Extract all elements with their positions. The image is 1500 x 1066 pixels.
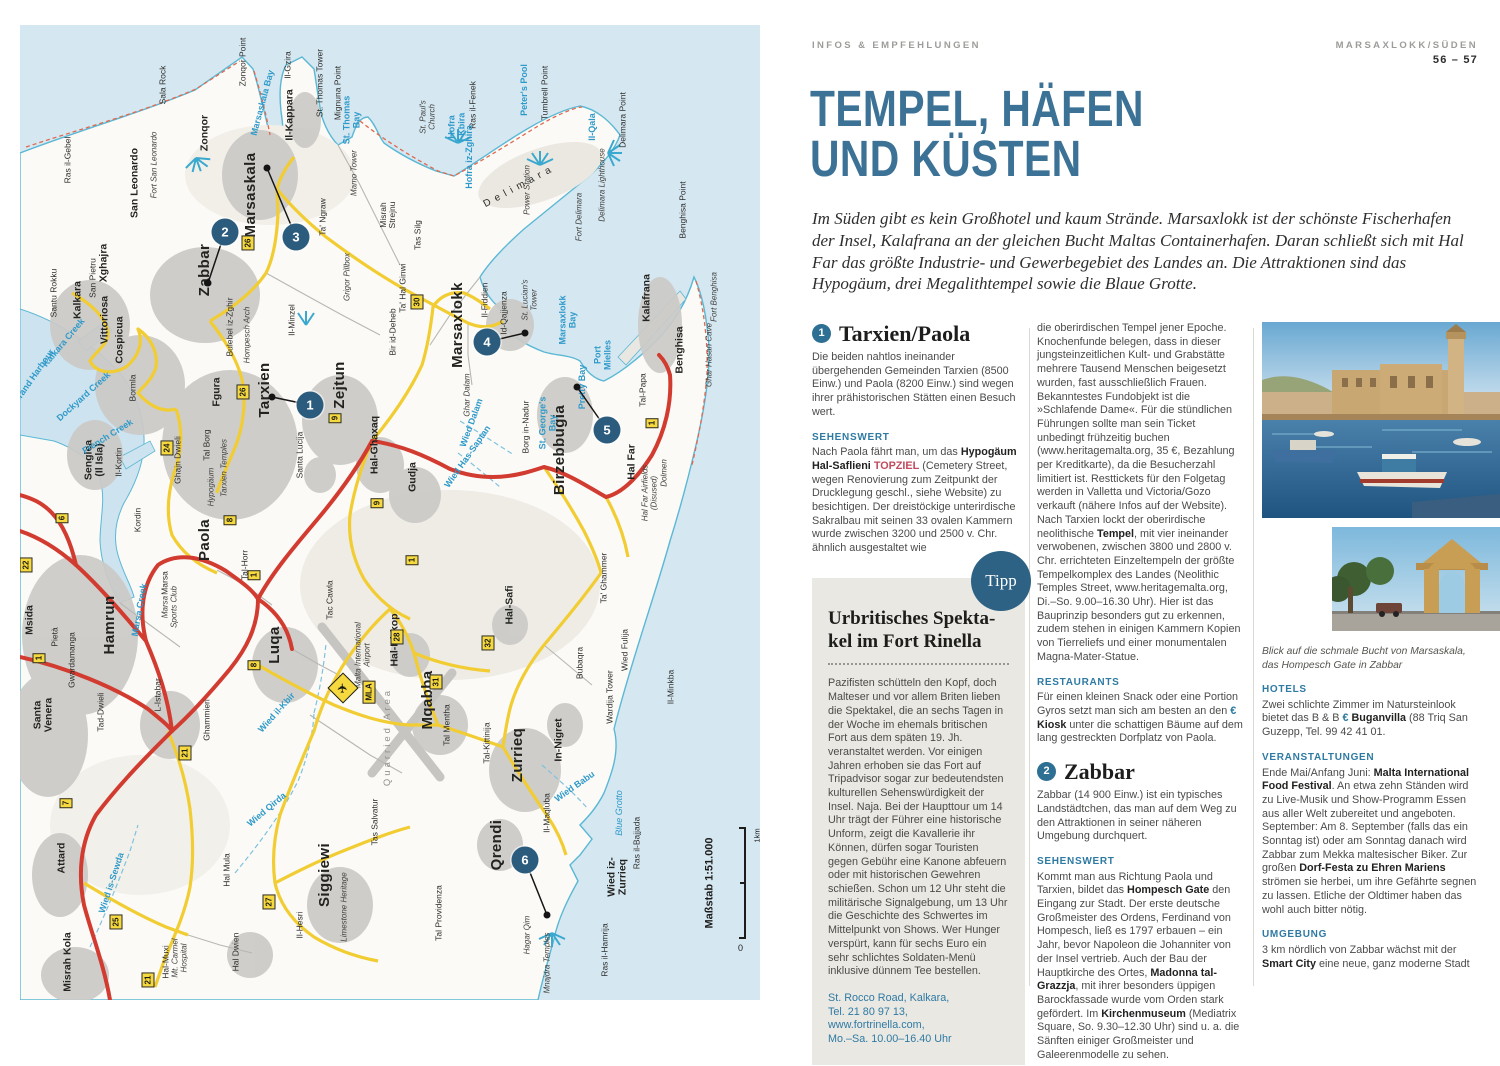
body-paragraph: Die beiden nahtlos ineinander übergehend… xyxy=(812,351,1025,420)
kicker-sehenswert: SEHENSWERT xyxy=(1037,855,1245,869)
photo-marsaskala-harbour xyxy=(1262,322,1500,518)
section-title: Zabbar xyxy=(1064,765,1135,779)
kicker-sehenswert: SEHENSWERT xyxy=(812,431,1025,445)
map-marker-dot xyxy=(205,280,212,287)
running-header-right: MARSAXLOKK/SÜDEN 56 – 57 xyxy=(1336,40,1478,66)
tipp-badge: Tipp xyxy=(971,551,1031,611)
photo-caption: Blick auf die schmale Bucht von Marsaska… xyxy=(1262,645,1478,672)
body-paragraph: die oberirdischen Tempel jener Epoche. K… xyxy=(1037,322,1245,665)
dotted-divider xyxy=(828,663,1009,665)
tipp-body: Pazifisten schütteln den Kopf, doch Malt… xyxy=(828,677,1009,978)
map-marker-4: 4 xyxy=(474,329,501,356)
map-marker-dot xyxy=(522,330,529,337)
map-marker-5: 5 xyxy=(594,417,621,444)
running-header-left: INFOS & EMPFEHLUNGEN xyxy=(812,40,981,51)
section-heading-zabbar: 2 Zabbar xyxy=(1037,762,1245,781)
body-paragraph: Zabbar (14 900 Einw.) ist ein typisches … xyxy=(1037,789,1245,844)
column-3: Blick auf die schmale Bucht von Marsaska… xyxy=(1262,322,1500,975)
tipp-title: Urbritisches Spekta- kel im Fort Rinella xyxy=(828,608,1009,654)
section-title: Tarxien/Paola xyxy=(839,327,970,341)
map-marker-6: 6 xyxy=(512,847,539,874)
map-marker-3: 3 xyxy=(283,224,310,251)
section-heading-tarxien-paola: 1 Tarxien/Paola xyxy=(812,324,1025,343)
section-number-badge: 2 xyxy=(1037,762,1056,781)
kicker-veranstaltungen: VERANSTALTUNGEN xyxy=(1262,751,1478,765)
column-divider xyxy=(1253,328,1254,986)
map-malta-south: ZabbarMarsaskalaTarxienZejtunMarsaxlokkB… xyxy=(20,25,760,1000)
map-marker-2: 2 xyxy=(212,219,239,246)
tipp-contact-info: St. Rocco Road, Kalkara, Tel. 21 80 97 1… xyxy=(828,992,1009,1047)
page-numbers: 56 – 57 xyxy=(1336,54,1478,66)
map-marker-dot xyxy=(264,165,271,172)
body-paragraph: Ende Mai/Anfang Juni: Malta Internationa… xyxy=(1262,767,1478,918)
section-number-badge: 1 xyxy=(812,324,831,343)
column-divider xyxy=(1029,328,1030,986)
section-name: MARSAXLOKK/SÜDEN xyxy=(1336,40,1478,51)
body-paragraph: 3 km nördlich von Zabbar wächst mit der … xyxy=(1262,944,1478,971)
body-paragraph: Kommt man aus Richtung Paola und Tarxien… xyxy=(1037,871,1245,1063)
map-marker-dot xyxy=(574,384,581,391)
photo-hompesch-gate xyxy=(1332,527,1500,631)
map-marker-dot xyxy=(269,394,276,401)
map-marker-1: 1 xyxy=(297,392,324,419)
kicker-restaurants: RESTAURANTS xyxy=(1037,676,1245,690)
tipp-box: Tipp Urbritisches Spekta- kel im Fort Ri… xyxy=(812,578,1025,1065)
body-paragraph: Zwei schlichte Zimmer im Natursteinlook … xyxy=(1262,699,1478,740)
page-title: TEMPEL, HÄFEN UND KÜSTEN xyxy=(810,84,1144,184)
map-poi-markers: 123456 xyxy=(20,25,760,1000)
intro-paragraph: Im Süden gibt es kein Großhotel und kaum… xyxy=(812,208,1467,295)
map-marker-dot xyxy=(544,912,551,919)
body-paragraph: Für einen kleinen Snack oder eine Portio… xyxy=(1037,691,1245,746)
column-2: die oberirdischen Tempel jener Epoche. K… xyxy=(1037,322,1245,1066)
kicker-umgebung: UMGEBUNG xyxy=(1262,928,1478,942)
kicker-hotels: HOTELS xyxy=(1262,683,1478,697)
guidebook-spread: { "colors":{"title_blue":"#3c7296","head… xyxy=(0,0,1500,1017)
column-1: 1 Tarxien/Paola Die beiden nahtlos inein… xyxy=(812,322,1025,1065)
body-paragraph: Nach Paola fährt man, um das Hypogäum Ha… xyxy=(812,446,1025,556)
